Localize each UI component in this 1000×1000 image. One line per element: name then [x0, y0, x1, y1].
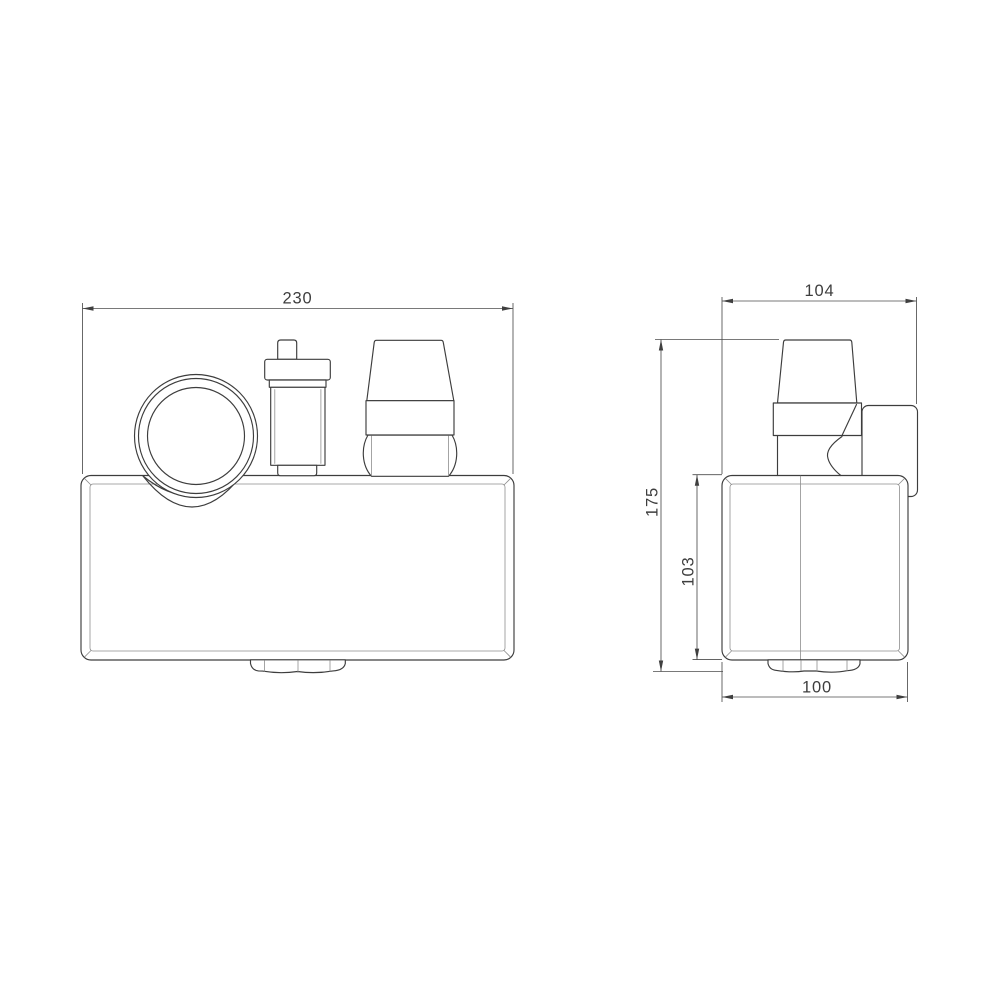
air-vent-body	[271, 387, 325, 465]
dim-label-side-body-height: 103	[680, 557, 698, 587]
union-nut-front	[251, 660, 346, 673]
knob-band-side	[773, 403, 861, 436]
knob-base-front	[363, 435, 456, 476]
air-vent-valve	[265, 340, 331, 476]
air-vent-cap	[265, 359, 331, 380]
knob-band-front	[366, 401, 454, 435]
union-nut-side	[768, 660, 860, 672]
dim-label-side-body-depth: 100	[802, 679, 832, 697]
air-vent-base	[278, 465, 317, 475]
control-knob-front	[363, 340, 456, 476]
dim-label-side-depth-overall: 104	[805, 282, 835, 300]
technical-drawing: 230	[0, 0, 1000, 1000]
side-view: 104 175 103 100	[644, 282, 918, 702]
knob-cone-front	[367, 340, 454, 400]
front-view: 230	[81, 290, 514, 673]
dim-label-side-height-overall: 175	[644, 487, 662, 517]
knob-cone-side	[778, 340, 857, 403]
side-body	[722, 476, 908, 661]
pump-head-face	[135, 375, 258, 498]
technical-drawing-page: 230	[0, 0, 1000, 1000]
air-vent-nipple	[278, 340, 297, 359]
dim-side-body-height: 103	[680, 475, 723, 660]
valve-neck-side	[778, 436, 843, 476]
dim-label-front-width: 230	[283, 290, 313, 308]
air-vent-ring	[269, 380, 326, 387]
control-knob-side	[773, 340, 861, 436]
front-body	[81, 476, 514, 661]
